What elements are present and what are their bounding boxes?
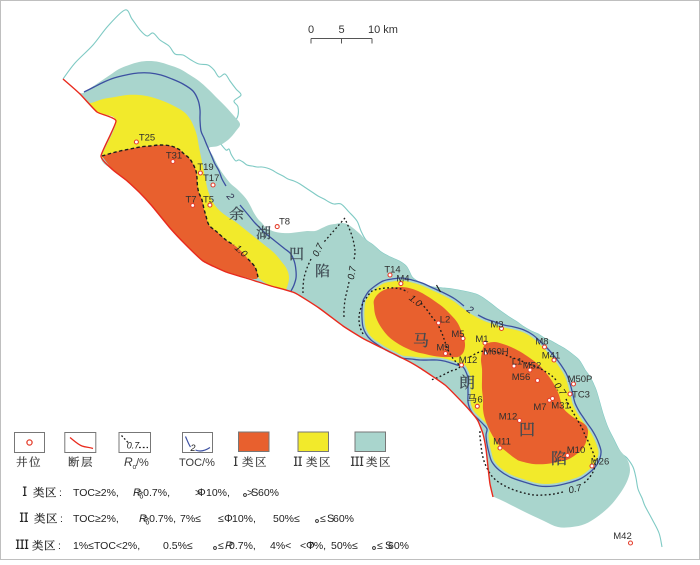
- svg-text:/%: /%: [136, 457, 149, 469]
- svg-text:TOC≥2%,: TOC≥2%,: [73, 487, 119, 499]
- svg-text:M52: M52: [523, 360, 541, 371]
- svg-text:Φ: Φ: [197, 487, 206, 499]
- svg-text:4%<: 4%<: [270, 540, 291, 552]
- svg-text:M50P: M50P: [568, 374, 593, 385]
- svg-text:50%≤: 50%≤: [331, 540, 358, 552]
- svg-text:1%≤TOC<2%,: 1%≤TOC<2%,: [73, 540, 140, 552]
- svg-text:TOC/%: TOC/%: [179, 457, 215, 469]
- svg-text:M9: M9: [436, 342, 449, 353]
- svg-text:T7: T7: [185, 195, 196, 206]
- svg-text:M11: M11: [493, 436, 511, 447]
- svg-text:M3: M3: [490, 319, 503, 330]
- svg-text:M5: M5: [451, 329, 464, 340]
- svg-text:10%,: 10%,: [206, 487, 230, 499]
- svg-text:0.5%≤: 0.5%≤: [163, 540, 193, 552]
- svg-text:M10: M10: [567, 445, 585, 456]
- svg-text:L2: L2: [440, 314, 451, 325]
- svg-text:M56: M56: [512, 372, 530, 383]
- svg-text:M26: M26: [591, 456, 609, 467]
- svg-text:M7: M7: [533, 402, 546, 413]
- svg-text:60%: 60%: [333, 513, 354, 525]
- svg-text:0.7: 0.7: [127, 441, 141, 451]
- svg-text:TC3: TC3: [572, 389, 590, 400]
- svg-text:M41: M41: [542, 350, 560, 361]
- svg-text:TOC≥2%,: TOC≥2%,: [73, 513, 119, 525]
- svg-text:M42: M42: [613, 531, 631, 542]
- svg-text:T5: T5: [203, 194, 214, 205]
- svg-text:M1: M1: [475, 334, 488, 345]
- svg-text:50%≤: 50%≤: [273, 513, 300, 525]
- svg-text:T17: T17: [203, 173, 219, 184]
- svg-text:L1: L1: [512, 356, 523, 367]
- svg-text:M12: M12: [499, 411, 517, 422]
- svg-text:≤: ≤: [320, 513, 326, 525]
- svg-text:10 km: 10 km: [368, 24, 398, 36]
- svg-text:T31: T31: [166, 150, 182, 161]
- svg-text:5: 5: [338, 24, 344, 36]
- svg-text:2: 2: [189, 443, 195, 453]
- svg-text:60%: 60%: [258, 487, 279, 499]
- svg-text:≤: ≤: [377, 540, 383, 552]
- svg-text:>0.7%,: >0.7%,: [137, 487, 170, 499]
- svg-text:T25: T25: [139, 132, 155, 143]
- svg-text:T19: T19: [197, 162, 213, 173]
- svg-text::: :: [58, 540, 61, 552]
- svg-text:M4: M4: [396, 273, 409, 284]
- svg-text:60%: 60%: [388, 540, 409, 552]
- svg-text:M8: M8: [535, 336, 548, 347]
- svg-text::: :: [60, 513, 63, 525]
- svg-text:7%≤: 7%≤: [180, 513, 201, 525]
- svg-text:>0.7%,: >0.7%,: [143, 513, 176, 525]
- svg-text::: :: [59, 487, 62, 499]
- svg-text:M31: M31: [551, 400, 569, 411]
- svg-text:M60H: M60H: [483, 346, 508, 357]
- svg-text:7%,: 7%,: [308, 540, 326, 552]
- svg-text:≤: ≤: [218, 540, 224, 552]
- svg-text:T8: T8: [279, 216, 290, 227]
- svg-text:M12: M12: [459, 355, 477, 366]
- svg-text:0.7%,: 0.7%,: [229, 540, 256, 552]
- svg-text:0: 0: [308, 24, 314, 36]
- svg-text:10%,: 10%,: [232, 513, 256, 525]
- svg-text:6: 6: [477, 395, 482, 406]
